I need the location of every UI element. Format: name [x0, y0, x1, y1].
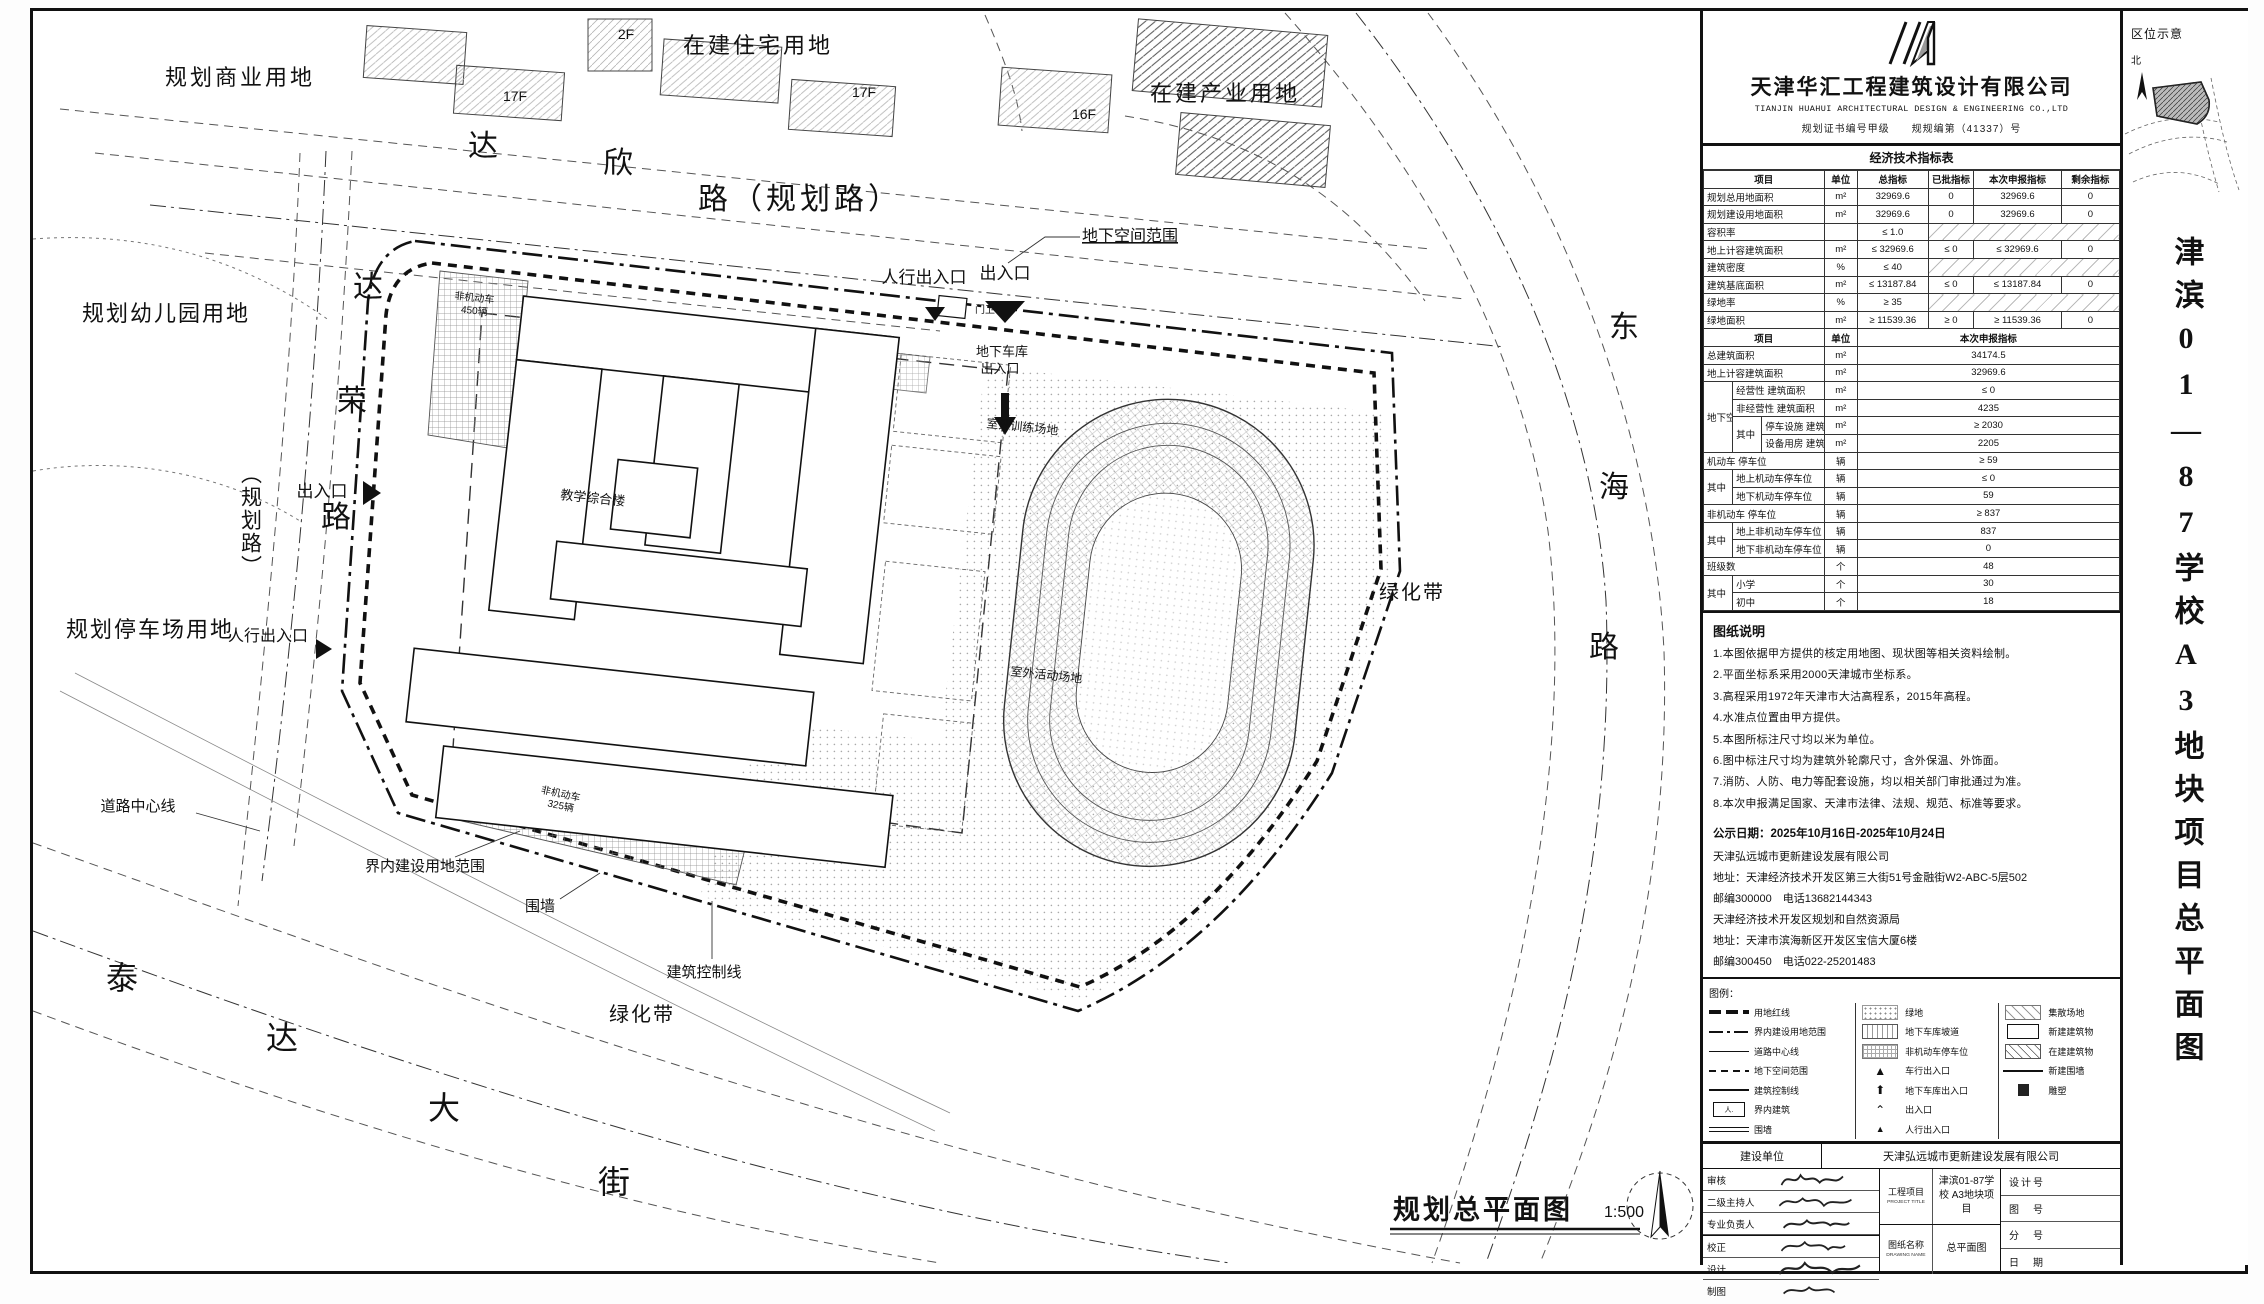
legend-item: 新建围墙: [2003, 1061, 2114, 1081]
road-taida-char1: 泰: [106, 960, 138, 996]
econ-cell: 地上机动车停车位: [1733, 470, 1825, 488]
entrance-west-label: 出入口: [297, 482, 348, 501]
entrance-north-label: 出入口: [980, 264, 1031, 283]
econ-cell: 30: [1857, 575, 2119, 593]
project-name: 津滨01-87学校 A3地块项目: [1933, 1169, 2000, 1223]
entrance-symbol-icon: ⌃: [1860, 1103, 1900, 1117]
econ-cell: m²: [1824, 241, 1857, 259]
building-symbol-icon: 人.: [1709, 1103, 1749, 1117]
econ-cell: 地上计容建筑面积: [1704, 241, 1825, 259]
parcel-industrial-label: 在建产业用地: [1150, 81, 1300, 106]
econ-cell: [1824, 223, 1857, 241]
project-label: 工程项目 PROJECT TITLE: [1880, 1169, 1933, 1223]
sub-number-field: 分 号: [2001, 1222, 2120, 1249]
note-line: 8.本次申报满足国家、天津市法律、法规、规范、标准等要求。: [1713, 794, 2110, 815]
econ-cell: ≤ 32969.6: [1974, 241, 2061, 259]
econ-cell: [1928, 223, 2119, 241]
wall-symbol-icon: [1709, 1122, 1749, 1136]
dashline-symbol-icon: [1709, 1064, 1749, 1078]
econ-cell: 辆: [1824, 470, 1857, 488]
econ-cell: 0: [1857, 540, 2119, 558]
ped-entrance-west-label: 人行出入口: [228, 627, 308, 645]
econ-cell: 总建筑面积: [1704, 346, 1825, 364]
legend-item: ▲人行出入口: [1860, 1120, 1998, 1140]
road-taida-char3: 大: [428, 1090, 460, 1126]
road-donghai-char1: 东: [1609, 311, 1639, 344]
econ-cell: m²: [1824, 188, 1857, 206]
date-field: 日 期: [2001, 1249, 2120, 1275]
econ-cell: m²: [1824, 311, 1857, 329]
note-line: 6.图中标注尺寸均为建筑外轮廓尺寸，含外保温、外饰面。: [1713, 751, 2110, 772]
econ-cell: 辆: [1824, 522, 1857, 540]
publicity-line: 地址：天津经济技术开发区第三大街51号金融街W2-ABC-5层502: [1713, 868, 2110, 889]
econ-cell: 地下机动车停车位: [1733, 487, 1825, 505]
econ-cell: m²: [1824, 276, 1857, 294]
econ-table: 项目单位总指标已批指标本次申报指标剩余指标规划总用地面积m²32969.6032…: [1703, 170, 2120, 611]
econ-cell: ≥ 59: [1857, 452, 2119, 470]
econ-cell: m²: [1824, 434, 1857, 452]
role-label: 设计: [1703, 1262, 1773, 1276]
company-logo: [1711, 17, 2112, 69]
company-cert-number: 规划证书编号甲级 规规编第（41337）号: [1711, 120, 2112, 135]
signature-shenhe: [1773, 1169, 1879, 1190]
econ-cell: ≥ 35: [1857, 294, 1928, 312]
econ-cell: 个: [1824, 593, 1857, 611]
econ-cell: 项目: [1704, 171, 1825, 189]
drawing-number-column: 设计号 图 号 分 号 日 期: [2001, 1169, 2120, 1274]
econ-cell: ≥ 11539.36: [1974, 311, 2061, 329]
econ-cell: 32969.6: [1857, 188, 1928, 206]
plan-caption-title: 规划总平面图: [1393, 1195, 1573, 1225]
road-daxin-rest: 路（规划路）: [698, 183, 902, 216]
econ-cell: 规划总用地面积: [1704, 188, 1825, 206]
signature-fuzeren: [1773, 1213, 1879, 1234]
drawing-name: 总平面图: [1933, 1225, 2000, 1275]
road-donghai-char2: 海: [1599, 471, 1629, 504]
legend-title: 图例：: [1709, 985, 2114, 1000]
legend-item: ⬆地下车库出入口: [1860, 1081, 1998, 1101]
econ-cell: ≤ 0: [1857, 382, 2119, 400]
road-darong-char2: 荣: [337, 385, 367, 418]
econ-cell: 2205: [1857, 434, 2119, 452]
drawing-name-label: 图纸名称 DRAWING NAME: [1880, 1225, 1933, 1275]
publicity-date: 公示日期：2025年10月16日-2025年10月24日: [1713, 825, 2110, 841]
econ-cell: 建筑基底面积: [1704, 276, 1825, 294]
owner-name: 天津弘远城市更新建设发展有限公司: [1822, 1144, 2120, 1168]
road-darong-suffix: （规划路）: [239, 463, 263, 578]
company-name-cn: 天津华汇工程建筑设计有限公司: [1711, 71, 2112, 101]
drawing-notes: 图纸说明 1.本图依据甲方提供的核定用地图、现状图等相关资料绘制。2.平面坐标系…: [1703, 611, 2120, 818]
econ-cell: 其中: [1704, 575, 1733, 610]
gatehouse-label: 门卫: [975, 303, 995, 316]
plaza-symbol-icon: [2003, 1005, 2043, 1019]
econ-cell: 班级数: [1704, 558, 1825, 576]
econ-cell: 地下空间: [1704, 382, 1733, 452]
econ-cell: m²: [1824, 417, 1857, 435]
control-line-label: 建筑控制线: [666, 964, 741, 981]
plan-caption-scale: 1:500: [1604, 1204, 1644, 1221]
legend-item: 地下车库坡道: [1860, 1022, 1998, 1042]
econ-cell: 经营性 建筑面积: [1733, 382, 1825, 400]
floors-16f: 16F: [1072, 106, 1096, 122]
company-name-en: TIANJIN HUAHUI ARCHITECTURAL DESIGN & EN…: [1711, 104, 2112, 114]
road-darong-char1: 达: [353, 271, 383, 304]
econ-cell: ≤ 0: [1928, 241, 1974, 259]
econ-cell: 其中: [1704, 522, 1733, 557]
garage-entrance-symbol-icon: ⬆: [1860, 1083, 1900, 1097]
econ-cell: 地上计容建筑面积: [1704, 364, 1825, 382]
econ-cell: 容积率: [1704, 223, 1825, 241]
role-label: 审核: [1703, 1173, 1773, 1187]
legend-item: 用地红线: [1709, 1003, 1855, 1023]
econ-cell: 34174.5: [1857, 346, 2119, 364]
econ-cell: 0: [2061, 188, 2119, 206]
econ-cell: 0: [1928, 206, 1974, 224]
note-line: 4.水准点位置由甲方提供。: [1713, 708, 2110, 729]
econ-cell: 18: [1857, 593, 2119, 611]
floors-17f-b: 17F: [852, 84, 876, 100]
econ-cell: 本次申报指标: [1974, 171, 2061, 189]
publicity-line: 地址：天津市滨海新区开发区宝信大厦6楼: [1713, 931, 2110, 952]
legend-column-buildings: 集散场地 新建建筑物 在建建筑物 新建围墙 雕塑: [1998, 1003, 2114, 1140]
wall-label: 围墙: [525, 898, 555, 915]
econ-cell: ≥ 11539.36: [1857, 311, 1928, 329]
econ-cell: 单位: [1824, 329, 1857, 347]
econ-cell: 辆: [1824, 487, 1857, 505]
title-block: 建设单位 天津弘远城市更新建设发展有限公司 审核 二级主持人 专业负责人 校正 …: [1703, 1141, 2120, 1274]
signature-zhitu: [1773, 1280, 1879, 1301]
econ-cell: 非经营性 建筑面积: [1733, 399, 1825, 417]
green-belt-south-label: 绿化带: [609, 1003, 675, 1026]
ped-entrance-north-label: 人行出入口: [882, 268, 967, 287]
owner-label: 建设单位: [1703, 1144, 1822, 1168]
info-panel: 天津华汇工程建筑设计有限公司 TIANJIN HUAHUI ARCHITECTU…: [1700, 11, 2120, 1265]
econ-cell: ≤ 13187.84: [1857, 276, 1928, 294]
road-donghai-char3: 路: [1589, 631, 1619, 664]
econ-cell: ≤ 13187.84: [1974, 276, 2061, 294]
econ-cell: m²: [1824, 364, 1857, 382]
road-taida-char2: 达: [266, 1020, 298, 1056]
legend-column-areas: 绿地 地下车库坡道 非机动车停车位 ▲车行出入口 ⬆地下车库出入口 ⌃出入口 ▲…: [1855, 1003, 1998, 1140]
under-construction-symbol-icon: [2003, 1044, 2043, 1058]
econ-cell: 837: [1857, 522, 2119, 540]
sheet-vertical-title: 津滨01—87学校A3地块项目总平面图: [2164, 236, 2208, 1074]
note-line: 5.本图所标注尺寸均以米为单位。: [1713, 730, 2110, 751]
econ-cell: 规划建设用地面积: [1704, 206, 1825, 224]
econ-cell: 其中: [1733, 417, 1762, 452]
legend-item: 雕塑: [2003, 1081, 2114, 1101]
econ-cell: m²: [1824, 382, 1857, 400]
econ-cell: 单位: [1824, 171, 1857, 189]
econ-cell: 32969.6: [1974, 188, 2061, 206]
econ-cell: 非机动车 停车位: [1704, 505, 1825, 523]
econ-cell: 设备用房 建筑面积: [1762, 434, 1824, 452]
econ-cell: m²: [1824, 206, 1857, 224]
econ-cell: 4235: [1857, 399, 2119, 417]
note-line: 3.高程采用1972年天津市大沽高程系，2015年高程。: [1713, 687, 2110, 708]
site-plan: 规划商业用地 在建住宅用地 在建产业用地 规划幼儿园用地 规划停车场用地 达 欣…: [33, 11, 1700, 1265]
note-line: 1.本图依据甲方提供的核定用地图、现状图等相关资料绘制。: [1713, 644, 2110, 665]
legend-item: 人.界内建筑: [1709, 1100, 1855, 1120]
legend-item: ▲车行出入口: [1860, 1061, 1998, 1081]
econ-cell: ≥ 2030: [1857, 417, 2119, 435]
bike-parking-symbol-icon: [1860, 1044, 1900, 1058]
green-belt-east-label: 绿化带: [1379, 581, 1445, 604]
econ-cell: 绿地面积: [1704, 311, 1825, 329]
econ-cell: 地上非机动车停车位: [1733, 522, 1825, 540]
role-label: 校正: [1703, 1240, 1773, 1254]
econ-cell: 0: [2061, 206, 2119, 224]
econ-cell: ≤ 1.0: [1857, 223, 1928, 241]
location-map-title: 区位示意: [2123, 11, 2248, 42]
econ-cell: 48: [1857, 558, 2119, 576]
econ-cell: 辆: [1824, 505, 1857, 523]
road-daxin-char2: 欣: [603, 147, 633, 180]
econ-cell: 32969.6: [1857, 206, 1928, 224]
plan-caption: 规划总平面图 1:500: [1390, 1195, 1644, 1234]
road-centerline-label: 道路中心线: [100, 798, 175, 815]
econ-cell: 小学: [1733, 575, 1825, 593]
econ-cell: ≤ 32969.6: [1857, 241, 1928, 259]
publicity-lines: 天津弘远城市更新建设发展有限公司地址：天津经济技术开发区第三大街51号金融街W2…: [1713, 847, 2110, 972]
econ-cell: 剩余指标: [2061, 171, 2119, 189]
econ-cell: %: [1824, 294, 1857, 312]
notes-list: 1.本图依据甲方提供的核定用地图、现状图等相关资料绘制。2.平面坐标系采用200…: [1713, 644, 2110, 816]
econ-cell: 辆: [1824, 452, 1857, 470]
parcel-parking-label: 规划停车场用地: [66, 617, 234, 642]
garage-entrance-label-1: 地下车库: [976, 344, 1028, 359]
econ-cell: 辆: [1824, 540, 1857, 558]
signature-zhuchiren: [1773, 1191, 1879, 1212]
publicity-line: 天津经济技术开发区规划和自然资源局: [1713, 910, 2110, 931]
econ-cell: 个: [1824, 575, 1857, 593]
company-header: 天津华汇工程建筑设计有限公司 TIANJIN HUAHUI ARCHITECTU…: [1703, 11, 2120, 146]
econ-cell: 0: [2061, 241, 2119, 259]
econ-cell: ≥ 837: [1857, 505, 2119, 523]
econ-cell: ≤ 40: [1857, 258, 1928, 276]
econ-cell: 0: [2061, 276, 2119, 294]
north-label: 北: [2131, 55, 2141, 67]
legend-item: 界内建设用地范围: [1709, 1022, 1855, 1042]
design-number-field: 设计号: [2001, 1169, 2120, 1196]
sculpture-symbol-icon: [2003, 1083, 2043, 1097]
econ-cell: 绿地率: [1704, 294, 1825, 312]
ramp-symbol-icon: [1860, 1025, 1900, 1039]
road-darong-char3: 路: [321, 501, 351, 534]
econ-cell: 32969.6: [1974, 206, 2061, 224]
econ-cell: 0: [1928, 188, 1974, 206]
legend-item: 道路中心线: [1709, 1042, 1855, 1062]
garage-entrance-label-2: 出入口: [980, 361, 1019, 376]
drawing-sheet: { "plan": { "parcels": { "commercial": "…: [0, 0, 2264, 1280]
econ-cell: [1928, 258, 2119, 276]
centerline-symbol-icon: [1709, 1044, 1749, 1058]
econ-cell: 个: [1824, 558, 1857, 576]
signature-sheji: [1773, 1258, 1879, 1279]
econ-cell: 机动车 停车位: [1704, 452, 1825, 470]
floors-17f-a: 17F: [503, 88, 527, 104]
econ-cell: 其中: [1704, 470, 1733, 505]
econ-cell: 地下非机动车停车位: [1733, 540, 1825, 558]
econ-cell: %: [1824, 258, 1857, 276]
econ-cell: 已批指标: [1928, 171, 1974, 189]
econ-cell: 32969.6: [1857, 364, 2119, 382]
econ-cell: m²: [1824, 399, 1857, 417]
econ-cell: m²: [1824, 346, 1857, 364]
note-line: 7.消防、人防、电力等配套设施，均以相关部门审批通过为准。: [1713, 772, 2110, 793]
redline-symbol-icon: [1709, 1005, 1749, 1019]
role-label: 制图: [1703, 1284, 1773, 1298]
econ-cell: 初中: [1733, 593, 1825, 611]
huahui-logo-icon: [1876, 18, 1948, 68]
ped-entrance-symbol-icon: ▲: [1860, 1122, 1900, 1136]
site-boundary-label: 界内建设用地范围: [365, 858, 485, 875]
legend-item: ⌃出入口: [1860, 1100, 1998, 1120]
legend-item: 集散场地: [2003, 1003, 2114, 1023]
publicity-line: 邮编300000 电话13682144343: [1713, 889, 2110, 910]
econ-cell: ≥ 0: [1928, 311, 1974, 329]
econ-cell: 59: [1857, 487, 2119, 505]
legend-column-lines: 用地红线 界内建设用地范围 道路中心线 地下空间范围 建筑控制线 人.界内建筑 …: [1709, 1003, 1855, 1140]
location-north-arrow-icon: [2137, 72, 2147, 100]
legend-item: 新建建筑物: [2003, 1022, 2114, 1042]
legend-item: 建筑控制线: [1709, 1081, 1855, 1101]
vehicle-entrance-symbol-icon: ▲: [1860, 1064, 1900, 1078]
econ-cell: 总指标: [1857, 171, 1928, 189]
legend-item: 非机动车停车位: [1860, 1042, 1998, 1062]
underground-extent-label: 地下空间范围: [1082, 227, 1178, 245]
legend-item: 地下空间范围: [1709, 1061, 1855, 1081]
road-taida-char4: 街: [598, 1164, 630, 1200]
econ-cell: ≤ 0: [1928, 276, 1974, 294]
publicity-block: 公示日期：2025年10月16日-2025年10月24日 天津弘远城市更新建设发…: [1703, 817, 2120, 976]
floors-2f: 2F: [618, 26, 634, 42]
legend-item: 绿地: [1860, 1003, 1998, 1023]
signature-jiaozheng: [1773, 1236, 1879, 1257]
figure-number-field: 图 号: [2001, 1196, 2120, 1223]
econ-cell: 建筑密度: [1704, 258, 1825, 276]
parcel-kindergarten-label: 规划幼儿园用地: [82, 301, 250, 326]
parcel-commercial-label: 规划商业用地: [165, 65, 315, 90]
legend-block: 图例： 用地红线 界内建设用地范围 道路中心线 地下空间范围 建筑控制线 人.界…: [1703, 977, 2120, 1142]
new-wall-symbol-icon: [2003, 1064, 2043, 1078]
econ-cell: 项目: [1704, 329, 1825, 347]
dashdot-symbol-icon: [1709, 1025, 1749, 1039]
legend-item: 围墙: [1709, 1120, 1855, 1140]
green-symbol-icon: [1860, 1005, 1900, 1019]
controlline-symbol-icon: [1709, 1083, 1749, 1097]
location-map: 北: [2123, 42, 2247, 232]
publicity-line: 天津弘远城市更新建设发展有限公司: [1713, 847, 2110, 868]
signature-column: 审核 二级主持人 专业负责人 校正 设计 制图: [1703, 1169, 1880, 1274]
publicity-line: 邮编300450 电话022-25201483: [1713, 952, 2110, 973]
parcel-residential-label: 在建住宅用地: [683, 33, 833, 58]
econ-cell: ≤ 0: [1857, 470, 2119, 488]
econ-cell: 停车设施 建筑面积: [1762, 417, 1824, 435]
road-daxin-char1: 达: [468, 130, 498, 163]
note-line: 2.平面坐标系采用2000天津城市坐标系。: [1713, 665, 2110, 686]
econ-cell: [1928, 294, 2119, 312]
new-building-symbol-icon: [2003, 1025, 2043, 1039]
notes-title: 图纸说明: [1713, 621, 2110, 640]
right-strip: 区位示意 北 津滨01—87学校A3地块项目总平面图: [2120, 11, 2248, 1265]
econ-table-title: 经济技术指标表: [1703, 146, 2120, 170]
role-label: 二级主持人: [1703, 1195, 1773, 1209]
legend-item: 在建建筑物: [2003, 1042, 2114, 1062]
role-label: 专业负责人: [1703, 1217, 1773, 1231]
econ-cell: 0: [2061, 311, 2119, 329]
econ-cell: 本次申报指标: [1857, 329, 2119, 347]
